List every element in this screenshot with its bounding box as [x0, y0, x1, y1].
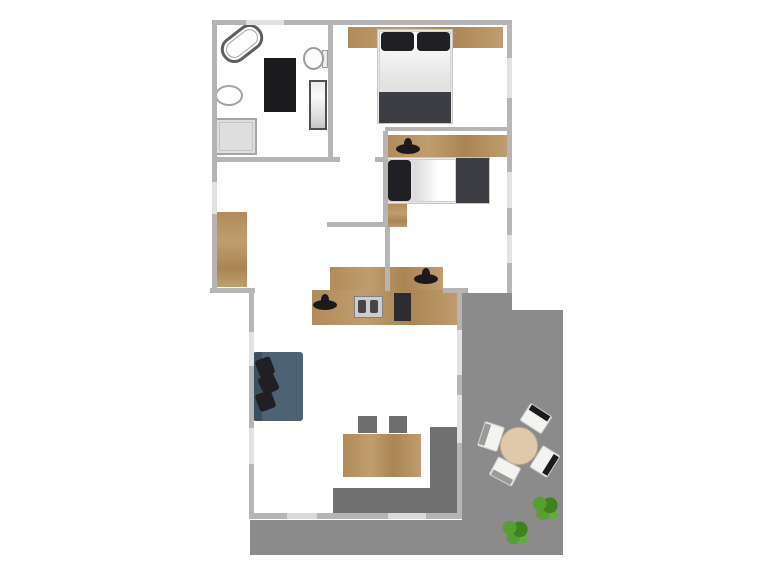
wall-hall-right	[385, 227, 390, 291]
door-terrace-2	[388, 513, 426, 519]
hallway-wardrobe	[217, 212, 247, 287]
bedroom2-pillow	[388, 160, 411, 201]
window-right-2	[507, 172, 512, 208]
bathroom-sink	[215, 85, 243, 106]
window-living-left-2	[249, 428, 254, 464]
dining-chair-1	[358, 416, 377, 433]
bedroom2-desk-lamp	[396, 144, 420, 154]
wall-living-bottom	[249, 513, 462, 519]
window-right-1	[507, 58, 512, 98]
bedroom1-pillow-right	[417, 32, 450, 51]
kitchen-cutting-board	[394, 293, 411, 321]
wall-bedroom2-left	[383, 131, 388, 226]
bedroom1-blanket	[379, 92, 451, 123]
bathroom-bathtub	[216, 19, 269, 69]
window-left-1	[212, 182, 217, 214]
dining-table	[343, 434, 421, 477]
bedroom2-blanket	[456, 158, 489, 203]
wall-bathroom-divider	[328, 25, 333, 160]
window-living-right-1	[457, 330, 462, 375]
kitchen-faucet-lower	[313, 300, 337, 310]
bedroom2-nightstand	[386, 204, 407, 227]
wall-bedrooms-divider	[385, 127, 507, 131]
wall-bedroom2-bottom	[327, 222, 387, 227]
wall-kitchen-right	[443, 288, 468, 293]
terrace-round-table	[500, 427, 538, 465]
bathroom-shower-tray	[215, 118, 257, 155]
bathroom-toilet-bowl	[303, 47, 324, 70]
floor-plan	[0, 0, 768, 576]
kitchen-stove	[354, 296, 383, 318]
door-terrace-1	[287, 513, 317, 519]
dining-chair-2	[389, 416, 407, 433]
bathroom-cabinet	[309, 80, 327, 130]
window-living-left-1	[249, 332, 254, 366]
terrace-plant-2	[500, 519, 530, 546]
bathroom-rug	[264, 58, 296, 112]
bedroom1-pillow-left	[381, 32, 414, 51]
window-right-3	[507, 235, 512, 263]
wall-hall-top-left	[212, 157, 340, 162]
window-top	[246, 20, 284, 25]
kitchen-faucet-upper	[414, 274, 438, 284]
window-living-right-2	[457, 395, 462, 443]
wall-living-left	[249, 288, 254, 519]
patio-dark-horizontal	[333, 488, 458, 514]
terrace-plant-1	[530, 495, 560, 522]
